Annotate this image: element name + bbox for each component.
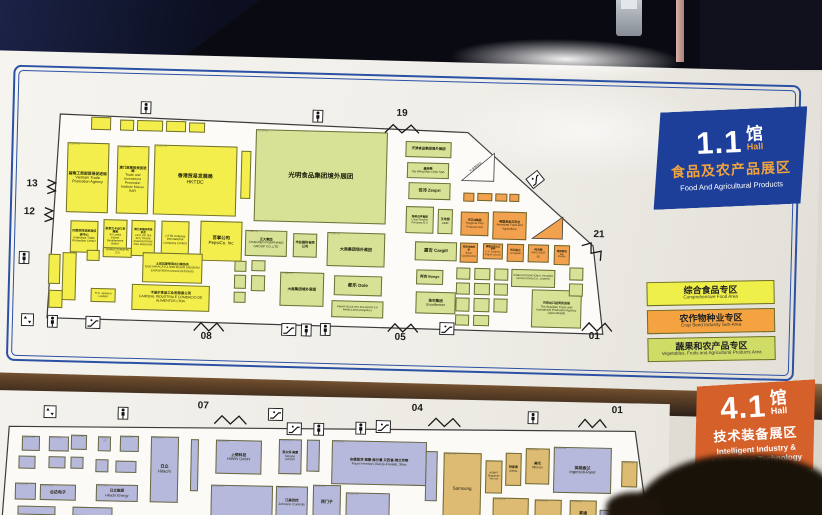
booth-id: 4.1A6-04: [495, 499, 506, 502]
escalator-icon: [286, 422, 302, 440]
booth-id: 1.1C2-01: [156, 145, 167, 148]
hall-number: 4.1: [719, 390, 767, 424]
booth-63: [473, 315, 489, 326]
hall-en-label: Hall: [771, 406, 788, 416]
gate-icon: [387, 320, 419, 339]
booth-name-cn: 大商集团境外展团: [340, 247, 372, 252]
booth-4-1a6-03: 4.1A6-03: [534, 499, 562, 515]
booth-name-en: Vietnam Trade Promotion Agency: [69, 175, 107, 184]
booth-4-1a2-02: 4.1A2-02: [621, 461, 638, 487]
gate-icon: [213, 412, 247, 431]
booth-name-en: Faure Herman, Beicip-Franlab, Silva: [352, 463, 407, 468]
booth-charoen-pokphand-group-c: 1.1B5-03正大集团CHAROEN POKPHAND GROUP CO.,L…: [245, 230, 288, 257]
booth-name-en: ADM: [442, 221, 449, 225]
booth-name-en: Bayer CropScience: [462, 253, 476, 259]
gate-number-19: 19: [396, 109, 407, 119]
gate-icon: [39, 206, 57, 222]
booth-id: 4.1B2-01: [348, 493, 359, 496]
booth-60: [473, 298, 489, 312]
booth-id: 4.1C3-04: [17, 484, 28, 487]
booth-6: [190, 439, 199, 491]
booth-name-cn: 光明食品集团境外展团: [288, 172, 353, 181]
booth-indonesia-trade-promotio: 印度尼西亚贸易促进中心Indonesia Trade Promotion Cen…: [70, 220, 99, 253]
restroom-icon: [312, 110, 323, 128]
booth-name-en: Indonesia Trade Promotion Center: [72, 236, 96, 243]
booth-4-1c2-05: [48, 456, 65, 468]
booth-faure-herman-beicip-fran: 4.1B1-01安德里茨 福雷·赫尔曼 贝西普-佛兰克等Faure Herman…: [331, 440, 427, 486]
booth-kws-saat-se: 科沃施KWS SAAT SE: [528, 244, 549, 263]
booth-name-en: EGE IHRACATCI BIRLIKLERI (AEGEAN EXPORTE…: [144, 266, 200, 274]
restroom-icon: [355, 422, 366, 440]
booth-american-food-and-agricu: 美国食品与农业American Food and Agriculture: [492, 211, 527, 240]
zone-legend: 综合食品专区Comprehensive Food Area农作物种业专区Crop…: [646, 280, 775, 366]
booth-samsung: 4.1A7-06Samsung: [442, 452, 481, 515]
booth-id: 4.1C1-03: [100, 437, 110, 442]
booth-name-cn: 天津食品集团境外展团: [412, 147, 446, 152]
booth-4-1c1-04: 4.1C1-04: [71, 435, 87, 450]
booth-4-1c2-02: [115, 461, 136, 473]
restroom-icon: [140, 101, 151, 119]
hall-number-row: 1.1 馆 Hall: [696, 125, 764, 159]
booth-id: 4.1C1-06: [24, 437, 35, 440]
booth-4-1c2-06: [18, 456, 35, 469]
booth-name-en: Goodfarmer: [426, 303, 445, 308]
booth-name-en: Johnson Controls: [278, 503, 304, 507]
booth-bayer-cropscience: 拜耳作物科学Bayer CropScience: [460, 242, 479, 262]
booth-嘉吉-cargill: 嘉吉 Cargill: [415, 241, 457, 261]
booth-4-1c1-03: 4.1C1-03: [98, 436, 111, 451]
booth-28: [233, 292, 245, 303]
booth-高通: 4.1A6-02高通: [569, 500, 597, 515]
booth-hitachi-energy: 4.1C3-02日立能源Hitachi Energy: [96, 484, 138, 502]
booth-name-en: American Food and Agriculture: [494, 224, 524, 232]
booth-id: 4.1C1-02: [122, 437, 133, 440]
elevator-icon: [21, 313, 34, 331]
booth-4-1b2-04: 4.1B2-04: [210, 485, 273, 515]
booth-ege-ihracatci-birlikleri: 土耳其爱琴海出口商协会EGE IHRACATCI BIRLIKLERI (AEG…: [142, 252, 203, 284]
booth-43: [477, 193, 492, 201]
booth-id: 4.1A7-06: [446, 453, 457, 456]
booth-adm: 艾地盟ADM: [437, 209, 453, 234]
booth-name-en: Rijk Zwaan: [556, 254, 568, 260]
booth-id: 4.1C3-02: [98, 485, 109, 488]
booth-id: 4.1A6-03: [537, 500, 548, 503]
booth-name-en: U.S. Soybean Export Council: [485, 251, 501, 257]
booth-name-cn: 高通: [579, 511, 587, 515]
booth-hitachi: 4.1C1-01日立Hitachi: [150, 436, 179, 503]
hall-1-1-floorplan: 1.1C4-01越南工贸部贸易促进局Vietnam Trade Promotio…: [34, 93, 636, 365]
booth-johnson-controls: 4.1B2-03江森自控Johnson Controls: [275, 486, 308, 515]
booth-62: [455, 314, 469, 325]
hall-cn-char: 馆: [746, 125, 764, 143]
booth-1-1e1-02: [137, 120, 163, 132]
booth-9: [70, 457, 83, 469]
booth-name-en: Samsung: [452, 486, 471, 491]
booth-4-1b2-01: 4.1B2-01: [345, 492, 390, 515]
gate-icon: [577, 415, 607, 434]
booth-joy-wing-mau-chile-spa: 鑫荣懋Joy Wing Mau Chile SpA: [407, 162, 449, 179]
booth-trade-and-investment-pro: 1.1C3-01澳门贸易投资促进局Trade and Investment Pr…: [116, 145, 150, 214]
booth-name-en: HIWIN GmbH: [227, 457, 250, 462]
booth-id: 4.1B1-02: [281, 440, 292, 443]
booth-4-1c3-04: 4.1C3-04: [15, 482, 36, 499]
person-head-edge: [606, 492, 662, 515]
board-hall-1-1: 1.1C4-01越南工贸部贸易促进局Vietnam Trade Promotio…: [0, 50, 822, 394]
booth-name-en: Trade and Investment Promotion Institute…: [118, 174, 146, 194]
booth-name-en: Limagrain: [510, 253, 521, 256]
hall-title-cn: 技术装备展区: [713, 421, 798, 445]
legend-label-en: Crop Seed Industry Sub-Area: [681, 323, 741, 329]
gate-icon: [581, 319, 613, 338]
booth-25: [425, 451, 438, 501]
hall-number: 1.1: [696, 126, 743, 159]
booth-name-en: CEYLON TEA INTL TRADE ASSOCIATIONS AND M…: [133, 235, 153, 247]
legend-label-en: Vegetables, Fruits and Agricultural Prod…: [662, 351, 762, 358]
booth-name-en: Hitachi Energy: [105, 493, 128, 498]
hall-title-cn: 食品及农产品展区: [671, 156, 792, 181]
booth-name-en: J.STB Uniqway International Company Limi…: [163, 235, 187, 246]
booth-name-cn: 台达电子: [50, 490, 66, 495]
booth-30: [251, 275, 265, 291]
exhibition-signage-photo: 4.1C1-064.1C1-054.1C1-044.1C1-034.1C1-02…: [0, 0, 822, 515]
booth-romac-exports-ltd: ROMAC EXPORTS LTD: [103, 247, 132, 258]
gate-number-04: 04: [412, 404, 423, 414]
booth-name-en: PINAR RICAS DEL ECUADOR S.A PANECUASA (D…: [333, 306, 381, 313]
booth-hiwin-gmbh: 4.1B1-03上银科技HIWIN GmbH: [215, 440, 262, 475]
booth-name-en: HKTDC: [186, 180, 203, 186]
booth-name-cn: 佳沛 Zespri: [418, 189, 440, 194]
booth-6: [120, 120, 134, 131]
booth-4-1c4-03: [72, 507, 112, 515]
escalator-icon: [439, 322, 455, 340]
booth-id: 1.1B4-01: [258, 130, 269, 133]
booth-goodfarmer: 佳农集团Goodfarmer: [415, 291, 456, 314]
booth-name-en: Joy Wing Mau Chile SpA: [411, 170, 444, 174]
booth-id: 4.1A6-02: [572, 501, 583, 504]
gate-icon: [427, 414, 461, 433]
escalator-icon: [267, 408, 283, 426]
booth-name-en: Louis Dreyfus Company B.V.: [408, 218, 432, 225]
booth-name-cn: 大商集团境外展团: [287, 287, 316, 292]
booth-id: 1.1B5-03: [247, 231, 258, 234]
booth-name-en: KWS SAAT SE: [530, 252, 547, 258]
booth-name-en: ASML: [509, 469, 517, 473]
legend-item-vegetables-fruits-and-ag: 蔬果和农产品专区Vegetables, Fruits and Agricultu…: [647, 336, 775, 362]
booth-56: [456, 282, 470, 294]
booth-name-en: CHAROEN POKPHAND GROUP CO.,LTD: [247, 241, 285, 249]
booth-name-cn: 邦吉 Bunge: [420, 275, 439, 280]
booth-67: [569, 283, 583, 296]
booth-id: 1.1B5-01: [329, 233, 340, 236]
booth-20: [48, 254, 61, 284]
booth-limagrain: 利马格兰Limagrain: [507, 244, 524, 262]
booth-name-en: H.S. Jackson Limited: [93, 292, 114, 299]
restroom-icon: [313, 423, 324, 441]
booth-id: 4.1B2-04: [213, 486, 224, 489]
booth-pinar-ricas-del-ecuador-: PINAR RICAS DEL ECUADOR S.A PANECUASA (D…: [331, 300, 383, 318]
booth-asml: 阿斯麦ASML: [505, 453, 522, 486]
booth-name-cn: 嘉吉 Cargill: [424, 249, 448, 255]
booth-4-1a6-04: 4.1A6-04: [492, 497, 529, 515]
booth-id: 4.1B1-03: [218, 441, 229, 444]
booth-9: [189, 122, 205, 132]
booth-pepsico-inc: 百事公司PepsiCo. Inc: [200, 221, 243, 262]
restroom-icon: [117, 407, 128, 425]
gate-number-07: 07: [198, 401, 209, 411]
booth-1-1e1-03: [91, 117, 111, 131]
escalator-icon: [375, 420, 391, 438]
booth-19: [306, 440, 320, 472]
gate-number-13: 13: [26, 179, 37, 189]
hall-en-label: Hall: [747, 142, 764, 152]
booth-id: 4.1A5-01: [556, 448, 567, 451]
booth-4-1c1-06: 4.1C1-06: [22, 436, 40, 451]
booth-name-en: CARDEAL INDUSTRIA E COMERCIO DE ALIMENTO…: [133, 295, 207, 305]
booth-45: [509, 194, 519, 202]
booth-21: [61, 252, 76, 300]
booth-光明食品集团境外展团: 1.1B4-01光明食品集团境外展团: [254, 129, 388, 224]
booth-name-en: Syngenta Crop Protection AG: [463, 222, 487, 229]
booth-42: [463, 193, 474, 202]
booth-name-cn: 都乐 Dole: [348, 283, 368, 289]
booth-4-1c1-02: 4.1C1-02: [120, 436, 139, 452]
booth-name-cn: 西门子: [321, 500, 333, 505]
booth-name-en: Sri Lanka Export Development Board: [105, 233, 125, 246]
booth-55: [494, 268, 508, 280]
booth-3: [240, 151, 251, 199]
booth-id: 4.1B2-02: [315, 486, 326, 489]
booth-佳沛-zespri: 佳沛 Zespri: [408, 182, 450, 200]
booth-name-en: ROMAC EXPORTS LTD: [105, 249, 130, 255]
restroom-icon: [527, 411, 538, 429]
booth-u-s-soybean-export-counc: 美国大豆出口协会U.S. Soybean Export Council: [483, 243, 503, 260]
booth-44: [495, 193, 507, 201]
gate-icon: [193, 319, 225, 338]
booth-rijk-zwaan: 瑞克斯旺Rijk Zwaan: [554, 245, 571, 265]
booth-57: [474, 283, 490, 295]
booth-id: 1.1C4-01: [70, 143, 81, 146]
booth-台达电子: 4.1C3-03台达电子: [40, 484, 76, 501]
legend-item-crop-seed-industry-sub-a: 农作物种业专区Crop Seed Industry Sub-Area: [647, 308, 775, 334]
booth-id: 1.1C3-01: [119, 147, 130, 150]
booth-name-en: ASMPT Singapore Pte Ltd: [487, 473, 500, 482]
restroom-icon: [18, 251, 29, 269]
booth-name-cn: 丰益国际有限公司: [295, 242, 315, 250]
board-hall-4-1: 4.1C1-064.1C1-054.1C1-044.1C1-034.1C1-02…: [0, 390, 670, 515]
booth-name-en: SINBA INTERNATIONAL TRADING (HONG KONG) …: [513, 275, 553, 282]
booth-邦吉-bunge: 邦吉 Bunge: [416, 269, 443, 285]
legend-item-comprehensive-food-area: 综合食品专区Comprehensive Food Area: [646, 280, 774, 306]
booth-都乐-dole: 都乐 Dole: [334, 275, 383, 296]
booth-cardeal-industria-e-come: 卡迪尔食品工业和贸易公司CARDEAL INDUSTRIA E COMERCIO…: [131, 284, 210, 312]
booth-name-en: Micron: [532, 466, 542, 470]
booth-66: [569, 267, 583, 280]
booth-61: [493, 298, 507, 312]
elevator-icon: [43, 405, 56, 423]
booth-id: 4.1C1-04: [73, 436, 84, 439]
booth-id: 4.1B2-03: [278, 487, 289, 490]
booth-15: [87, 250, 100, 261]
booth-name-en: Hitachi: [158, 469, 171, 474]
booth-8: [166, 121, 186, 133]
hall-4-1-floorplan: 4.1C1-064.1C1-054.1C1-044.1C1-034.1C1-02…: [0, 392, 664, 515]
booth-27: [234, 275, 246, 289]
booth-syngenta-crop-protection: 先正达集团Syngenta Crop Protection AG: [460, 211, 489, 236]
gate-number-21: 21: [593, 230, 604, 240]
escalator-icon: [85, 316, 101, 334]
hall-title-en: Food And Agricultural Products: [680, 179, 783, 192]
hall-1-1-badge: 1.1 馆 Hall 食品及农产品展区 Food And Agricultura…: [649, 106, 811, 210]
booth-id: 4.1A2-02: [624, 462, 635, 465]
gate-icon: [41, 179, 59, 195]
booth-大商集团境外展团: 1.1B6-02大商集团境外展团: [279, 272, 324, 307]
booth-丰益国际有限公司: 丰益国际有限公司: [293, 233, 318, 258]
gate-number-01: 01: [612, 406, 623, 416]
booth-vietnam-trade-promotion-: 1.1C4-01越南工贸部贸易促进局Vietnam Trade Promotio…: [66, 142, 110, 213]
booth-h-s-jackson-limited: H.S. Jackson Limited: [90, 288, 115, 303]
booth-天津食品集团境外展团: 天津食品集团境外展团: [405, 141, 451, 158]
booth-10: [95, 459, 108, 472]
booth-4-1c4-04: [17, 506, 55, 515]
legend-label-en: Comprehensive Food Area: [683, 295, 738, 301]
restroom-icon: [320, 323, 331, 341]
booth-hktdc: 1.1C2-01香港贸易发展局HKTDC: [153, 144, 238, 216]
booth-ceylon-tea-intl-trade-as: 锡兰茶国际贸易协会CEYLON TEA INTL TRADE ASSOCIATI…: [131, 220, 156, 257]
light-fixture-mount: [621, 0, 637, 9]
booth-大商集团境外展团: 1.1B5-01大商集团境外展团: [326, 232, 385, 268]
booth-name-en: The Brazilian Trade and Investment Promo…: [533, 305, 579, 316]
restroom-icon: [300, 323, 311, 341]
booth-name-en: Metabo HiKOKI: [281, 455, 300, 462]
booth-22: [48, 290, 62, 308]
booth-29: [251, 260, 265, 271]
booth-西门子: 4.1B2-02西门子: [312, 485, 341, 515]
booth-name-en: Ingersoll-Rand: [569, 470, 595, 475]
booth-id: 4.1A5-02: [528, 449, 539, 452]
booth-id: 4.1C1-05: [51, 437, 62, 440]
restroom-icon: [47, 315, 58, 333]
escalator-icon: [280, 323, 296, 341]
booth-micron: 4.1A5-02美光Micron: [525, 448, 550, 484]
booth-sinba-international-trad: SINBA INTERNATIONAL TRADING (HONG KONG) …: [511, 269, 555, 288]
booth-name-en: PepsiCo. Inc: [208, 241, 233, 247]
booth-id: 4.1B1-01: [334, 441, 345, 444]
booth-54: [474, 268, 490, 280]
gate-icon: [384, 120, 420, 139]
booth-ingersoll-rand: 4.1A5-01英格索兰Ingersoll-Rand: [553, 447, 612, 494]
gate-number-12: 12: [24, 207, 35, 217]
booth-26: [234, 261, 246, 272]
booth-59: [455, 297, 469, 311]
booth-metabo-hikoki: 4.1B1-02麦太保 高壹Metabo HiKOKI: [278, 439, 302, 474]
booth-id: 4.1C1-01: [153, 437, 164, 440]
booth-53: [456, 267, 470, 279]
booth-4-1c1-05: 4.1C1-05: [49, 436, 69, 451]
booth-asmpt-singapore-pte-ltd: ASMPT Singapore Pte Ltd: [485, 460, 503, 493]
booth-58: [494, 283, 508, 295]
booth-id: 1.1B6-02: [282, 273, 293, 276]
booth-louis-dreyfus-company-b-: 路易达孚集团Louis Dreyfus Company B.V.: [405, 206, 434, 234]
booth-id: 4.1C3-03: [42, 485, 53, 488]
